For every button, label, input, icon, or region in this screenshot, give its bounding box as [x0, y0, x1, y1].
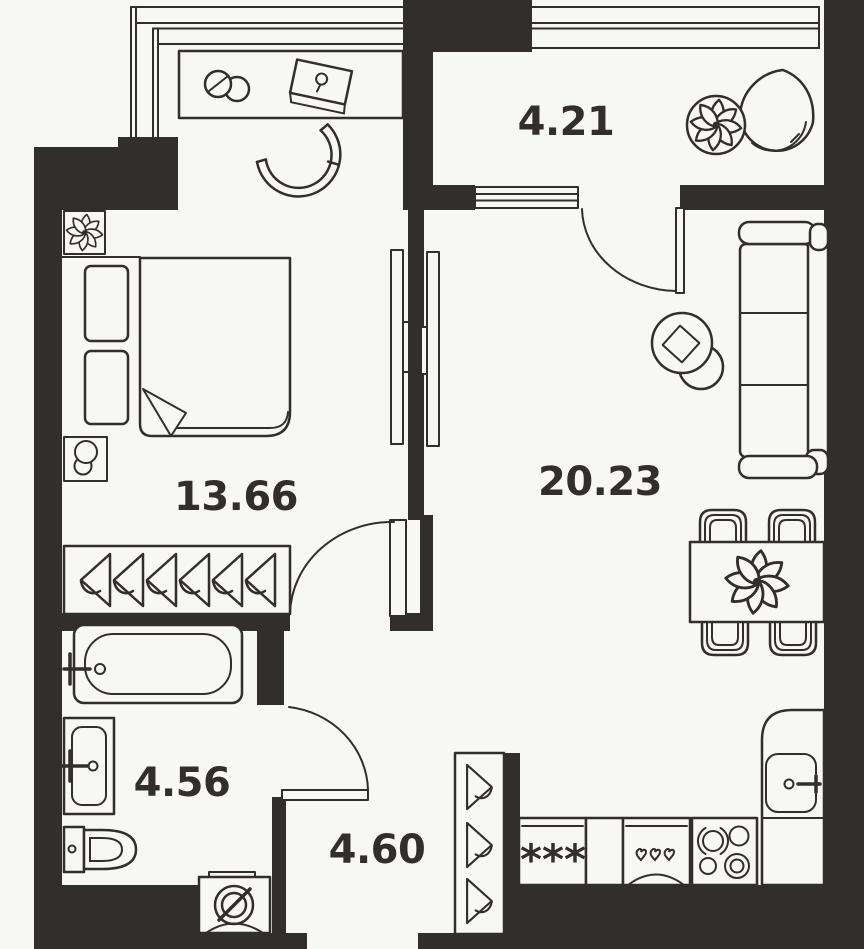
room-label-hallway: 4.60	[329, 827, 426, 873]
sofa-armrest-top	[739, 222, 815, 244]
washing-machine	[199, 872, 270, 933]
bedroom-plant	[64, 211, 105, 254]
wall-tub-niche	[257, 631, 284, 705]
bedside-lamp	[64, 437, 107, 481]
bathroom-door	[282, 707, 368, 800]
toilet	[64, 827, 136, 872]
wash-basin	[62, 718, 114, 814]
side-table-and-lamp	[652, 313, 723, 389]
dishwasher	[623, 818, 690, 885]
dining-chair	[702, 622, 748, 655]
wall-right	[824, 0, 864, 949]
wall-center-top	[403, 0, 433, 210]
sofa	[739, 222, 828, 478]
dining-chair	[769, 510, 815, 543]
room-label-bathroom: 4.56	[134, 760, 231, 806]
bedroom-door	[290, 520, 406, 616]
floor-plan: ***	[0, 0, 864, 949]
hallway-wardrobe	[455, 753, 504, 934]
sofa-armrest-bottom	[739, 456, 817, 478]
wall-bath-right-lower	[272, 797, 286, 937]
wall-kitchen-bottom	[504, 885, 864, 949]
dining-chair	[700, 510, 746, 543]
hanging-chair	[740, 70, 813, 151]
hallway	[455, 753, 504, 934]
balcony	[687, 70, 813, 154]
wall-top-left-chunk	[34, 137, 178, 210]
living-room-window	[475, 187, 578, 208]
dining-chair	[770, 622, 816, 655]
stove	[692, 818, 757, 885]
kitchen-counter	[586, 818, 623, 885]
kitchen-sink-counter	[762, 710, 824, 885]
bathtub	[64, 625, 242, 703]
room-label-bedroom: 13.66	[174, 474, 298, 520]
wall-balcony-left	[430, 0, 532, 52]
wall-left	[34, 210, 62, 890]
fridge-freezer: ***	[519, 818, 586, 885]
room-label-balcony: 4.21	[518, 99, 615, 145]
sofa-back	[808, 236, 828, 462]
nightstand-bottom	[85, 351, 128, 424]
balcony-window	[531, 7, 819, 48]
wall-under-washer	[199, 933, 307, 949]
wall-balcony-sill-left	[430, 185, 475, 210]
desk-chair	[255, 123, 355, 211]
floor-plan-canvas: ***	[0, 0, 864, 949]
freezer-stars-icon: ***	[520, 835, 586, 884]
wall-kitchen-divider	[504, 753, 520, 887]
dining-set	[690, 510, 824, 655]
room-label-living: 20.23	[538, 459, 662, 505]
double-bed	[140, 258, 290, 436]
sofa-corner-top	[810, 224, 828, 250]
balcony-plant	[687, 96, 745, 154]
wall-balcony-sill-right	[680, 185, 824, 210]
balcony-door	[582, 208, 684, 293]
wall-bottom-left	[34, 885, 199, 949]
nightstand-top	[85, 266, 128, 341]
bedroom-wardrobe	[64, 546, 290, 614]
kitchen: ***	[519, 710, 824, 885]
